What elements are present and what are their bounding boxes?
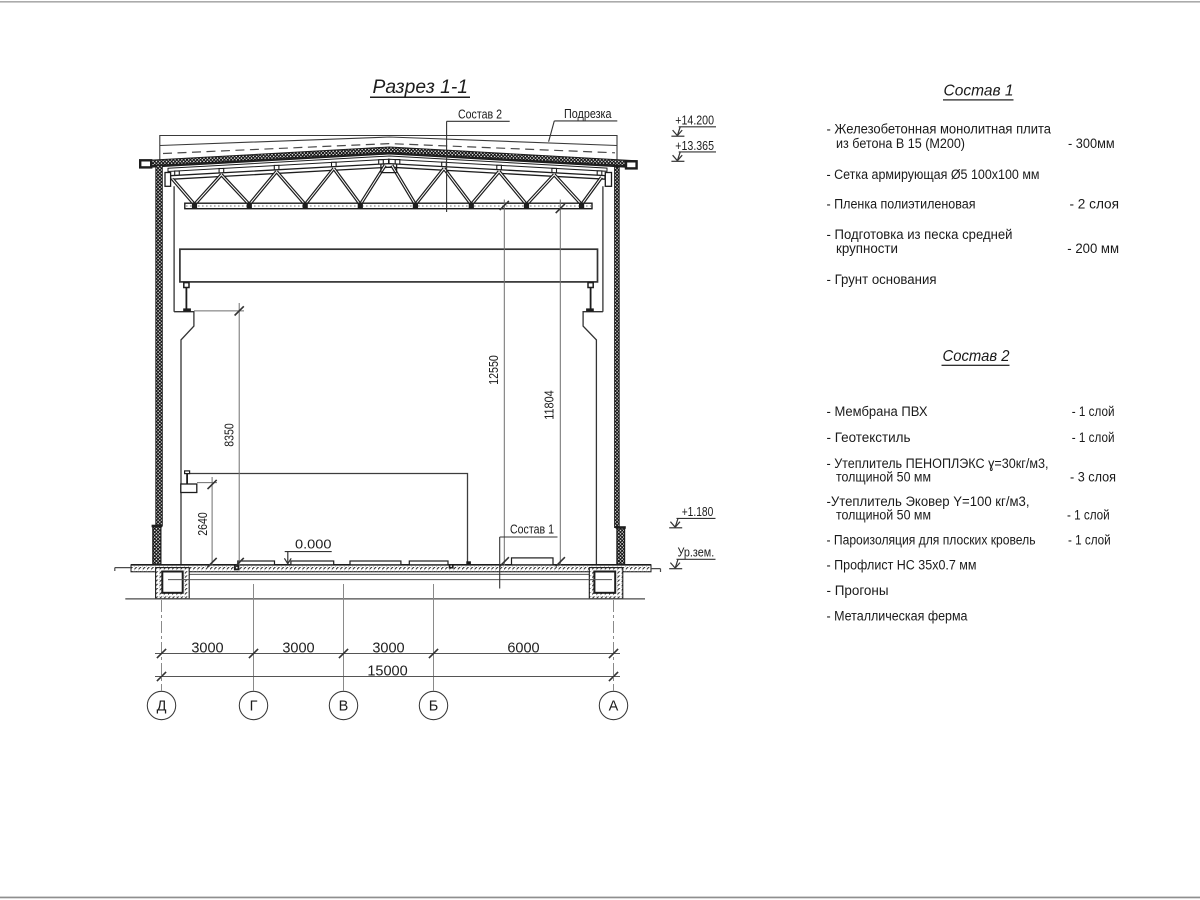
svg-text:- Профлист НС 35х0.7 мм: - Профлист НС 35х0.7 мм [827, 558, 977, 573]
svg-text:- 300мм: - 300мм [1068, 136, 1115, 151]
svg-text:- Грунт основания: - Грунт основания [827, 272, 937, 287]
svg-text:Ур.зем.: Ур.зем. [678, 546, 715, 560]
svg-text:- Металлическая ферма: - Металлическая ферма [827, 609, 969, 624]
svg-text:- Пароизоляция для плоских кро: - Пароизоляция для плоских кровель [827, 533, 1036, 548]
svg-text:Б: Б [429, 699, 439, 715]
svg-text:- Подготовка из песка средней: - Подготовка из песка средней [827, 227, 1013, 242]
svg-text:3000: 3000 [191, 640, 223, 656]
svg-text:- Прогоны: - Прогоны [827, 583, 889, 598]
svg-text:толщиной 50 мм: толщиной 50 мм [836, 508, 931, 523]
svg-text:- 200 мм: - 200 мм [1067, 241, 1119, 256]
svg-text:+1.180: +1.180 [682, 504, 714, 519]
svg-text:6000: 6000 [507, 640, 539, 656]
svg-text:Г: Г [250, 699, 258, 715]
svg-text:2640: 2640 [196, 512, 210, 535]
svg-text:- 2 слоя: - 2 слоя [1070, 197, 1120, 212]
svg-text:- Сетка армирующая Ø5 100х100: - Сетка армирующая Ø5 100х100 мм [827, 167, 1040, 182]
svg-text:+13.365: +13.365 [675, 138, 714, 153]
svg-text:0.000: 0.000 [295, 537, 332, 552]
svg-text:Состав 1: Состав 1 [944, 83, 1014, 100]
svg-text:Состав 2: Состав 2 [458, 108, 502, 122]
svg-text:- 3 слоя: - 3 слоя [1070, 470, 1116, 485]
svg-text:15000: 15000 [367, 663, 407, 679]
svg-text:12550: 12550 [487, 355, 501, 385]
svg-text:8350: 8350 [223, 423, 237, 446]
svg-text:- Мембрана ПВХ: - Мембрана ПВХ [827, 404, 928, 419]
svg-text:крупности: крупности [836, 241, 898, 256]
svg-text:- 1 слой: - 1 слой [1072, 404, 1115, 419]
svg-text:- 1 слой: - 1 слой [1072, 430, 1115, 445]
svg-text:Подрезка: Подрезка [564, 107, 612, 121]
svg-text:В: В [339, 699, 349, 715]
svg-text:- Пленка полиэтиленовая: - Пленка полиэтиленовая [827, 197, 976, 212]
svg-text:Разрез 1-1: Разрез 1-1 [373, 76, 469, 98]
svg-text:+14.200: +14.200 [675, 113, 714, 128]
svg-text:Состав 1: Состав 1 [510, 523, 554, 537]
svg-text:3000: 3000 [372, 640, 404, 656]
svg-text:- Геотекстиль: - Геотекстиль [827, 430, 911, 445]
svg-text:3000: 3000 [282, 640, 314, 656]
svg-text:- 1 слой: - 1 слой [1067, 508, 1110, 523]
svg-text:Состав 2: Состав 2 [943, 348, 1010, 365]
svg-text:толщиной 50 мм: толщиной 50 мм [836, 470, 931, 485]
svg-text:- 1 слой: - 1 слой [1068, 533, 1111, 548]
svg-text:Д: Д [157, 699, 167, 715]
svg-text:из бетона В 15 (М200): из бетона В 15 (М200) [836, 136, 965, 151]
svg-text:А: А [609, 699, 619, 715]
svg-text:- Железобетонная монолитная п: - Железобетонная монолитная плита [827, 122, 1052, 137]
svg-text:11804: 11804 [543, 390, 557, 420]
